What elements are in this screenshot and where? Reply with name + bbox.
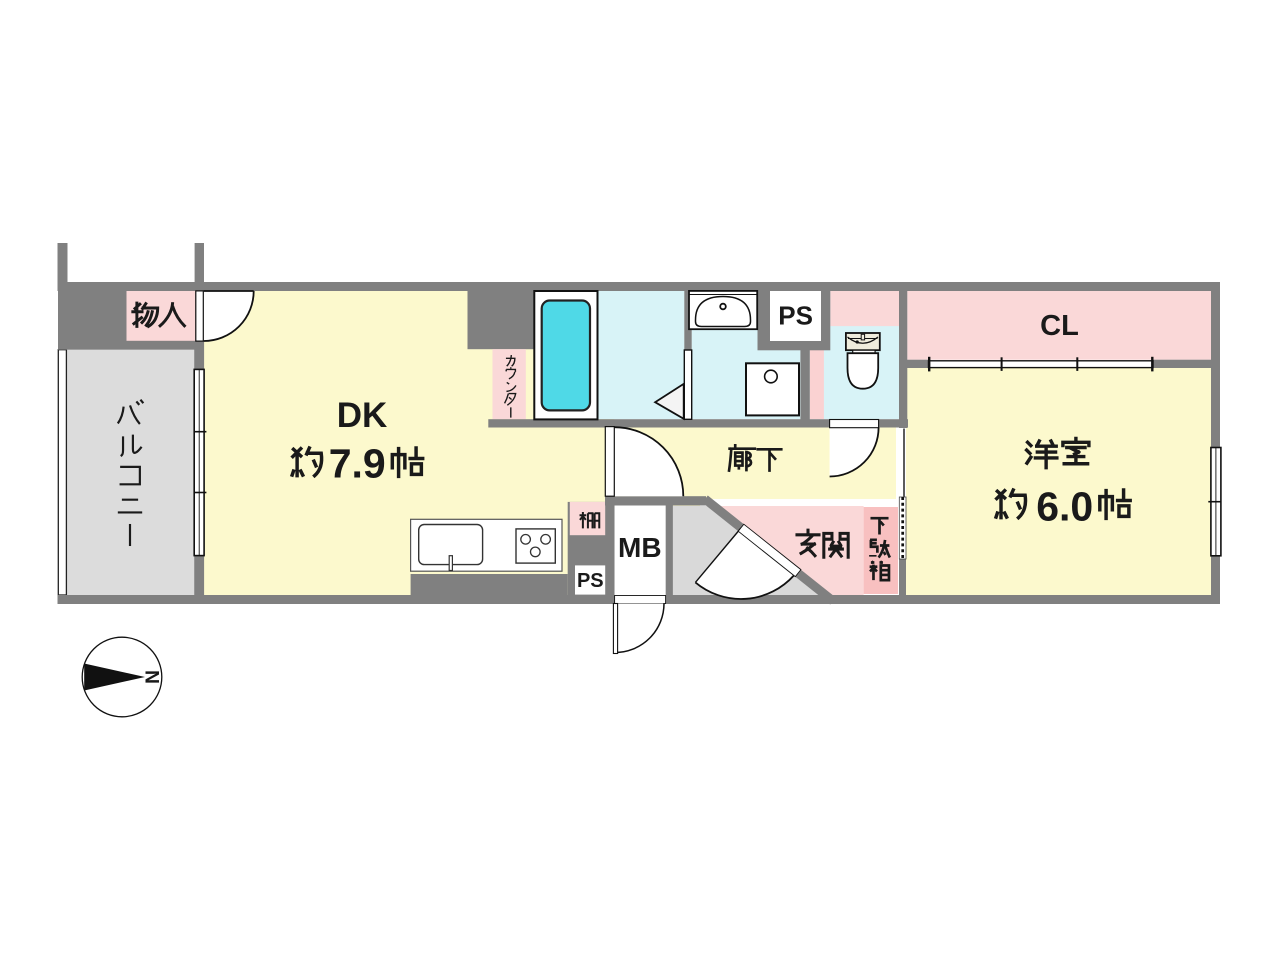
svg-text:DK: DK [337, 396, 388, 435]
svg-text:PS: PS [778, 300, 813, 330]
svg-text:CL: CL [1040, 310, 1079, 342]
svg-text:N: N [141, 670, 162, 684]
svg-text:6.0: 6.0 [1036, 483, 1093, 529]
svg-text:PS: PS [577, 570, 604, 592]
svg-text:MB: MB [618, 532, 662, 563]
svg-text:7.9: 7.9 [329, 441, 386, 487]
